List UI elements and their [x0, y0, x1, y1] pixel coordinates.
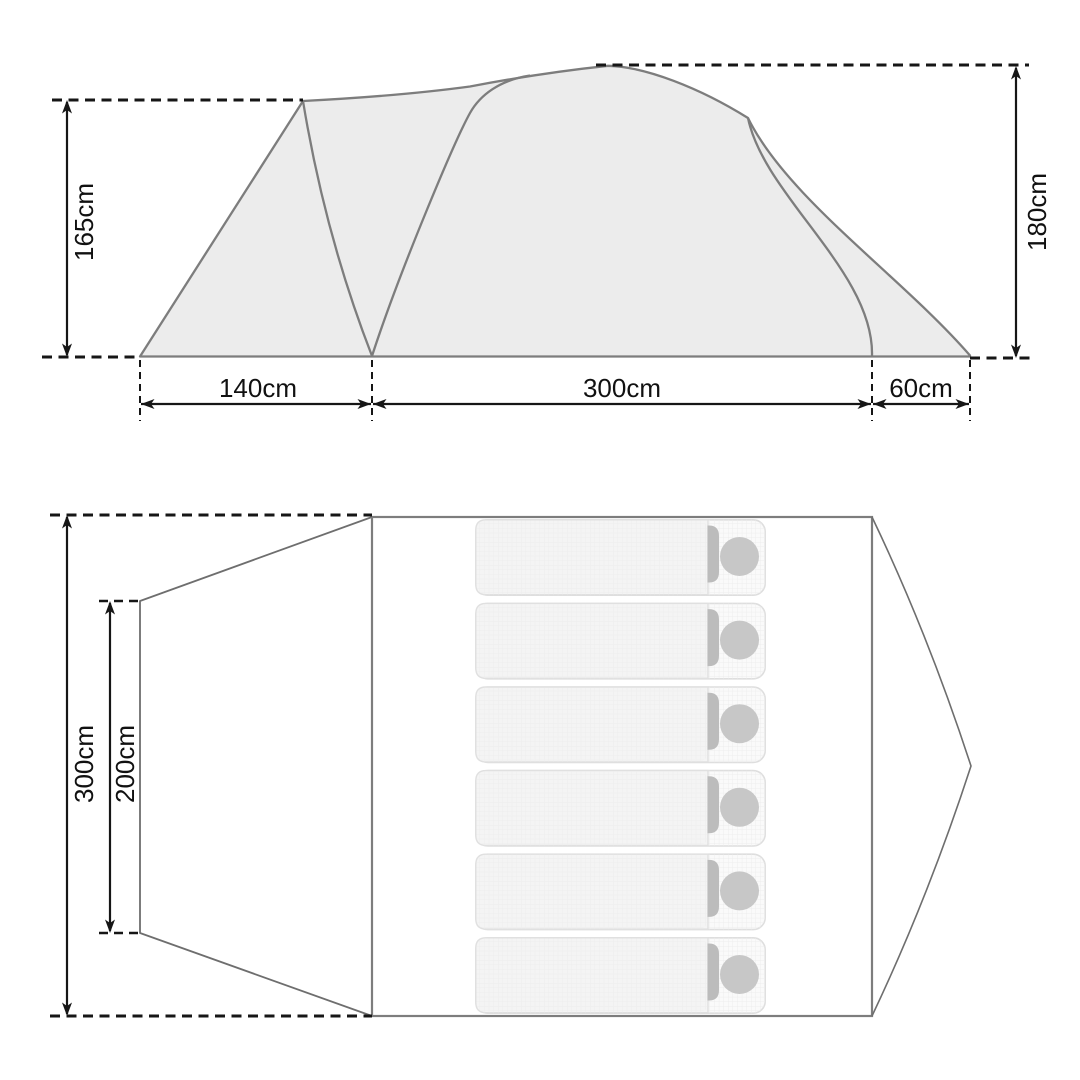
svg-text:140cm: 140cm: [219, 373, 297, 403]
svg-text:300cm: 300cm: [583, 373, 661, 403]
svg-text:200cm: 200cm: [110, 725, 140, 803]
svg-text:60cm: 60cm: [889, 373, 953, 403]
svg-text:180cm: 180cm: [1022, 173, 1052, 251]
svg-text:300cm: 300cm: [69, 725, 99, 803]
svg-text:165cm: 165cm: [69, 183, 99, 261]
